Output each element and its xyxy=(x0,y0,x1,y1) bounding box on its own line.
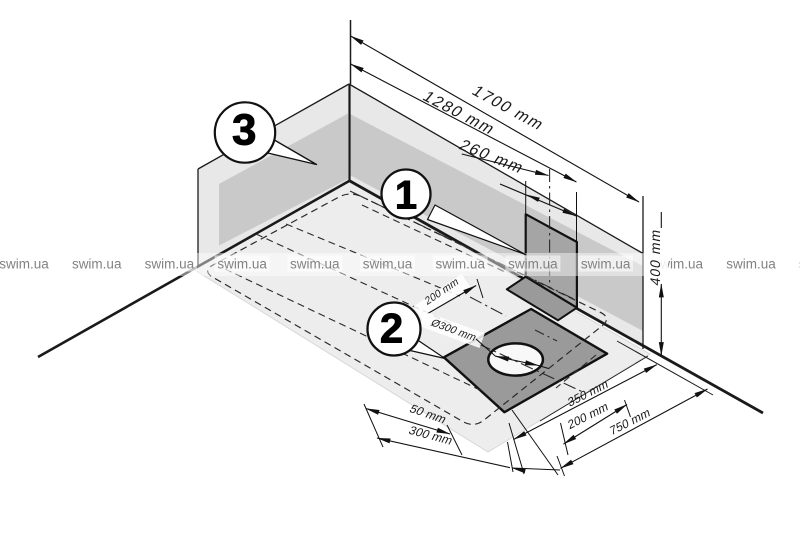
svg-text:swim.ua: swim.ua xyxy=(508,257,558,272)
svg-text:400 mm: 400 mm xyxy=(647,227,663,287)
svg-text:1: 1 xyxy=(395,174,417,218)
svg-text:3: 3 xyxy=(232,106,256,155)
svg-text:swim.ua: swim.ua xyxy=(72,257,122,272)
svg-text:swim.ua: swim.ua xyxy=(0,257,49,272)
svg-text:swim.ua: swim.ua xyxy=(145,257,195,272)
svg-text:2: 2 xyxy=(380,305,403,352)
svg-text:swim.ua: swim.ua xyxy=(435,257,485,272)
svg-text:swim.ua: swim.ua xyxy=(363,257,413,272)
svg-text:swim.ua: swim.ua xyxy=(581,257,631,272)
svg-text:swim.ua: swim.ua xyxy=(217,257,267,272)
svg-text:swim.ua: swim.ua xyxy=(290,257,340,272)
svg-text:swim.ua: swim.ua xyxy=(726,257,776,272)
